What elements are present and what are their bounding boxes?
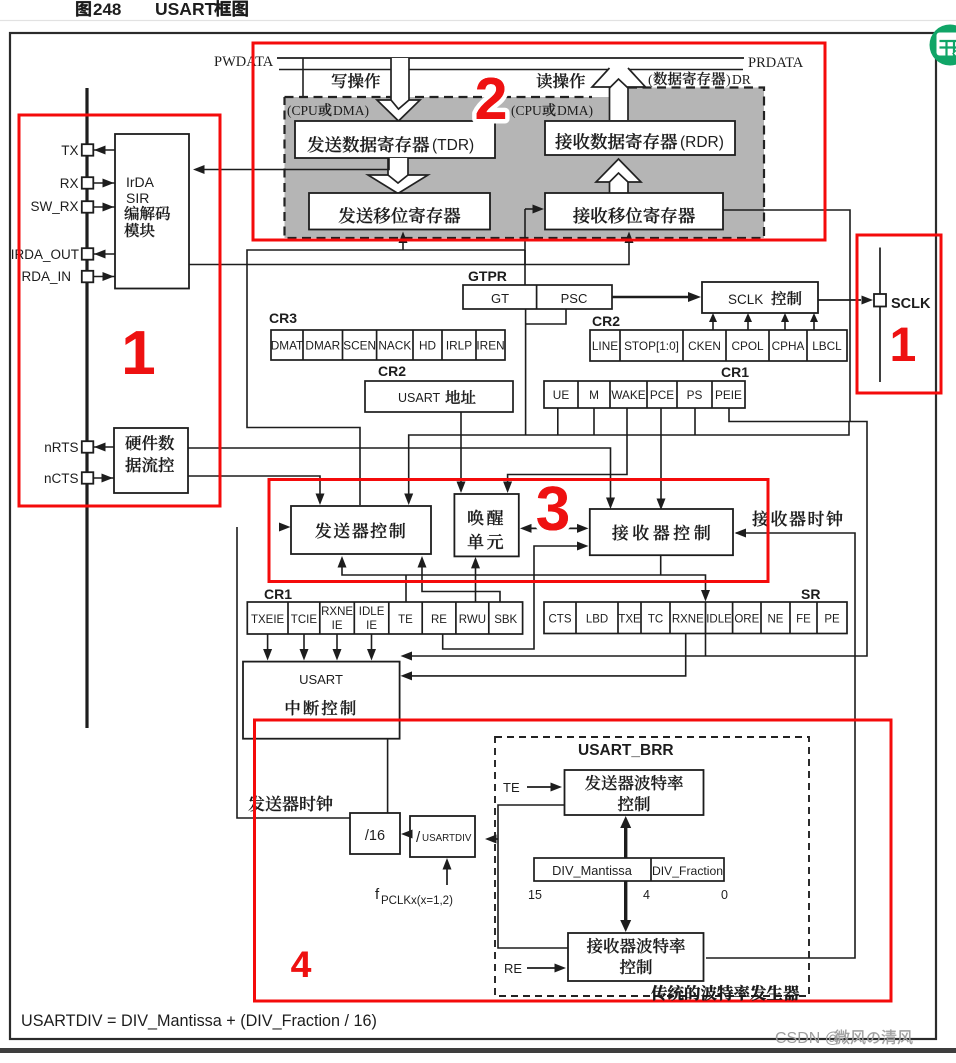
svg-text:TCIE: TCIE: [291, 614, 318, 626]
svg-text:(TDR): (TDR): [432, 137, 474, 154]
svg-text:CR2: CR2: [592, 313, 620, 329]
svg-text:TXEIE: TXEIE: [251, 614, 285, 626]
svg-text:PRDATA: PRDATA: [748, 55, 804, 71]
svg-text:2: 2: [475, 66, 508, 132]
svg-text:TE: TE: [398, 614, 413, 626]
svg-text:DIV_Fraction: DIV_Fraction: [652, 864, 723, 878]
svg-text:PE: PE: [824, 614, 840, 626]
svg-text:CR1: CR1: [721, 364, 749, 380]
svg-text:IREN: IREN: [476, 339, 504, 353]
svg-text:USARTDIV: USARTDIV: [422, 833, 472, 844]
svg-text:SW_RX: SW_RX: [30, 199, 78, 214]
svg-text:USART: USART: [398, 391, 441, 405]
svg-text:TC: TC: [648, 614, 663, 626]
svg-text:IRDA_IN: IRDA_IN: [18, 269, 71, 284]
svg-text:DMAR: DMAR: [305, 339, 340, 353]
svg-text:DMAT: DMAT: [271, 339, 304, 353]
svg-text:LBD: LBD: [586, 614, 608, 626]
svg-text:CPOL: CPOL: [731, 339, 764, 353]
svg-text:RE: RE: [504, 961, 522, 976]
svg-text:UE: UE: [553, 388, 570, 402]
svg-text:RX: RX: [60, 176, 79, 191]
svg-text:15: 15: [528, 888, 542, 902]
svg-text:PS: PS: [687, 388, 703, 402]
svg-text:CR2: CR2: [378, 363, 406, 379]
svg-text:SCLK: SCLK: [728, 292, 763, 307]
svg-text:CR1: CR1: [264, 586, 292, 602]
svg-text:(RDR): (RDR): [680, 134, 724, 151]
svg-text:HD: HD: [419, 339, 436, 353]
svg-text:nRTS: nRTS: [44, 440, 78, 455]
svg-text:IE: IE: [366, 620, 377, 632]
svg-text:): ): [726, 73, 731, 88]
svg-text:4: 4: [643, 888, 650, 902]
svg-text:/16: /16: [365, 828, 385, 844]
svg-text:0: 0: [721, 888, 728, 902]
svg-text:SR: SR: [801, 586, 820, 602]
svg-text:RWU: RWU: [459, 614, 486, 626]
svg-text:CPHA: CPHA: [772, 339, 805, 353]
svg-text:STOP[1:0]: STOP[1:0]: [624, 339, 679, 353]
svg-text:NACK: NACK: [378, 339, 411, 353]
svg-text:IDLE: IDLE: [359, 606, 385, 618]
svg-text:TX: TX: [61, 143, 78, 158]
svg-text:IDLE: IDLE: [706, 614, 732, 626]
svg-text:PCLKx(x=1,2): PCLKx(x=1,2): [381, 895, 453, 907]
svg-text:IE: IE: [332, 620, 343, 632]
svg-text:CTS: CTS: [549, 614, 572, 626]
svg-text:USARTDIV = DIV_Mantissa + (DIV: USARTDIV = DIV_Mantissa + (DIV_Fraction …: [21, 1012, 377, 1030]
svg-text:LINE: LINE: [592, 339, 618, 353]
svg-text:IrDA: IrDA: [126, 174, 155, 190]
svg-text:(: (: [648, 73, 653, 88]
svg-text:DMA): DMA): [333, 103, 369, 118]
svg-text:SCEN: SCEN: [343, 339, 376, 353]
svg-text:USART: USART: [299, 672, 343, 687]
svg-text:ORE: ORE: [734, 614, 759, 626]
svg-text:CR3: CR3: [269, 310, 297, 326]
svg-text:USART: USART: [155, 0, 216, 19]
svg-text:CKEN: CKEN: [688, 339, 721, 353]
svg-text:SIR: SIR: [126, 190, 149, 206]
svg-text:USART_BRR: USART_BRR: [578, 742, 674, 759]
svg-text:nCTS: nCTS: [44, 471, 79, 486]
svg-text:DIV_Mantissa: DIV_Mantissa: [552, 863, 633, 878]
svg-text:1: 1: [890, 319, 917, 372]
svg-text:FE: FE: [796, 614, 811, 626]
svg-text:DR: DR: [732, 72, 751, 87]
svg-text:PEIE: PEIE: [715, 388, 742, 402]
svg-text:SCLK: SCLK: [891, 296, 931, 312]
svg-text:248: 248: [93, 0, 121, 19]
svg-text:NE: NE: [768, 614, 784, 626]
svg-text:DMA): DMA): [557, 103, 593, 118]
svg-text:IRLP: IRLP: [446, 339, 472, 353]
svg-text:GTPR: GTPR: [468, 268, 507, 284]
svg-text:4: 4: [291, 944, 312, 985]
svg-text:RE: RE: [431, 614, 447, 626]
svg-text:1: 1: [121, 319, 155, 388]
svg-text:TE: TE: [503, 780, 520, 795]
svg-text:3: 3: [536, 475, 570, 544]
svg-text:GT: GT: [491, 291, 509, 306]
svg-text:RXNE: RXNE: [321, 606, 353, 618]
svg-text:SBK: SBK: [494, 614, 517, 626]
svg-text:TXE: TXE: [618, 614, 641, 626]
svg-text:PSC: PSC: [561, 291, 588, 306]
svg-text:RXNE: RXNE: [672, 614, 704, 626]
svg-text:PCE: PCE: [650, 388, 674, 402]
svg-text:(CPU: (CPU: [511, 103, 542, 118]
svg-text:LBCL: LBCL: [812, 339, 842, 353]
svg-text:M: M: [589, 388, 599, 402]
svg-text:IRDA_OUT: IRDA_OUT: [11, 247, 79, 262]
svg-text:(CPU: (CPU: [287, 103, 318, 118]
svg-text:WAKE: WAKE: [611, 388, 645, 402]
svg-text:CSDN @: CSDN @: [775, 1030, 841, 1047]
svg-text:PWDATA: PWDATA: [214, 54, 274, 70]
